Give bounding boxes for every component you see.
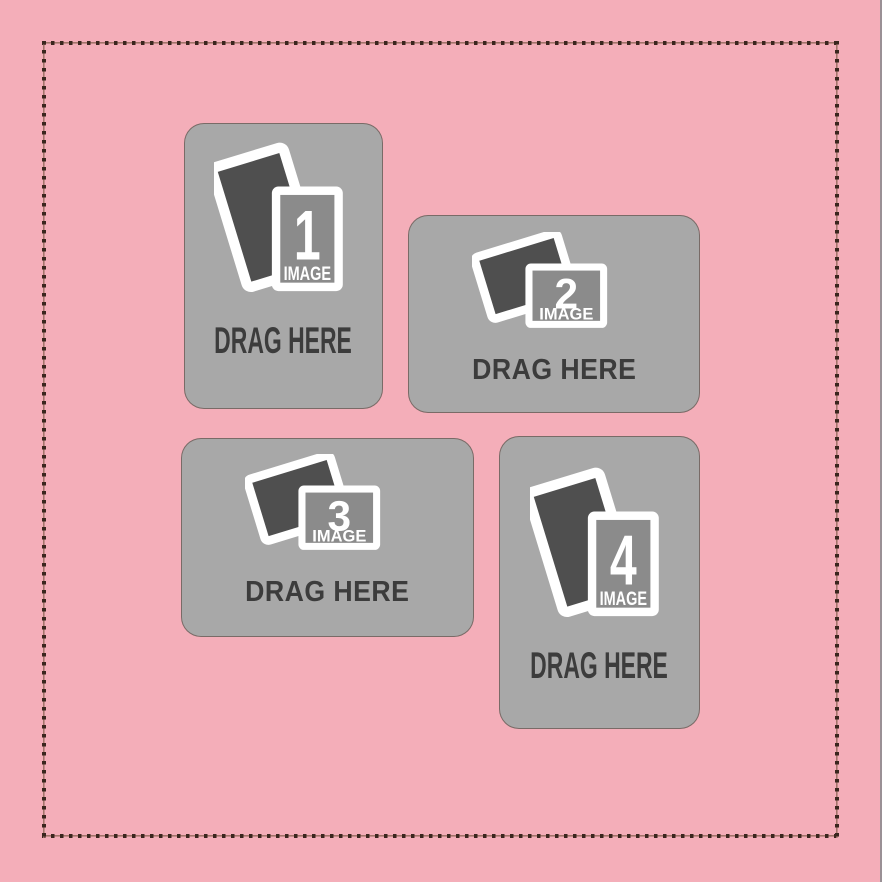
drag-here-label: DRAG HERE — [531, 647, 669, 684]
image-label: IMAGE — [283, 262, 331, 285]
stitched-border-right — [835, 41, 839, 838]
image-label: IMAGE — [539, 305, 593, 323]
image-dropzone-3[interactable]: 3 IMAGE DRAG HERE — [181, 438, 474, 637]
image-dropzone-1[interactable]: 1 IMAGE DRAG HERE — [184, 123, 383, 409]
photo-front-frame: 2 IMAGE — [525, 264, 607, 328]
image-label: IMAGE — [312, 527, 366, 545]
collage-template-canvas: { "colors": { "canvas_background": "#f4a… — [0, 0, 882, 882]
image-label: IMAGE — [599, 587, 647, 610]
stitched-border-top — [42, 41, 839, 45]
photo-stack-icon: 3 IMAGE — [245, 454, 410, 572]
photo-front-frame: 1 IMAGE — [271, 187, 342, 292]
stitched-border-left — [42, 41, 46, 838]
drag-here-label: DRAG HERE — [472, 356, 636, 385]
photo-stack-icon: 2 IMAGE — [472, 232, 637, 350]
photo-front-frame: 4 IMAGE — [587, 512, 658, 617]
image-dropzone-2[interactable]: 2 IMAGE DRAG HERE — [408, 215, 700, 413]
image-dropzone-4[interactable]: 4 IMAGE DRAG HERE — [499, 436, 700, 729]
drag-here-label: DRAG HERE — [245, 578, 409, 607]
photo-front-frame: 3 IMAGE — [298, 486, 380, 550]
drag-here-label: DRAG HERE — [215, 322, 353, 359]
stitched-border-bottom — [42, 834, 839, 838]
photo-stack-icon: 4 IMAGE — [530, 463, 670, 645]
photo-stack-icon: 1 IMAGE — [214, 138, 354, 320]
